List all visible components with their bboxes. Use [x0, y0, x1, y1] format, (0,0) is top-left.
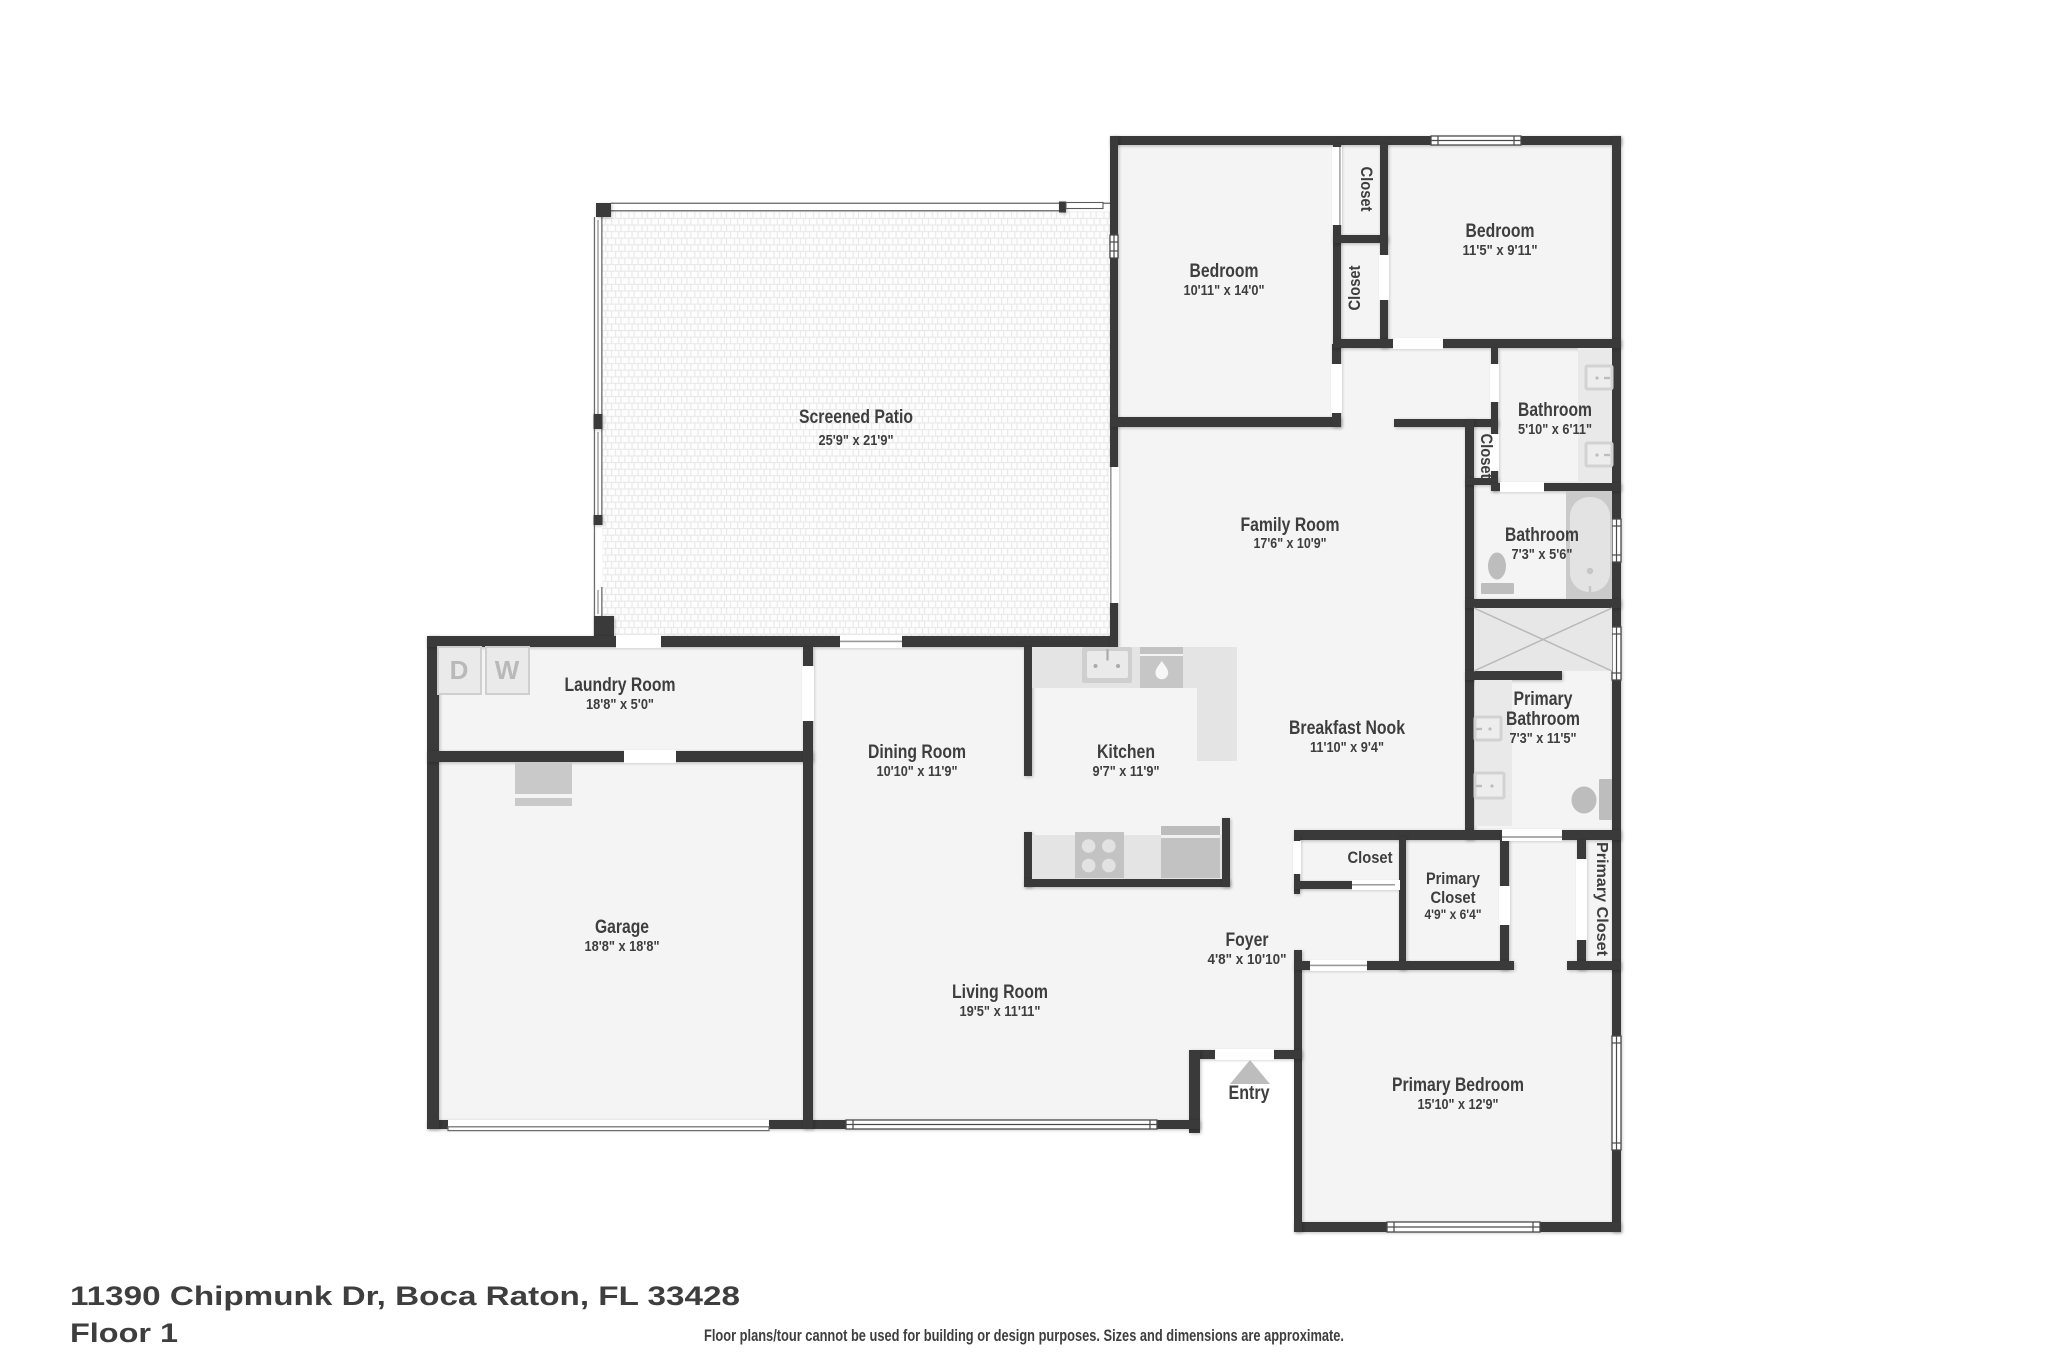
svg-text:Entry: Entry	[1229, 1083, 1270, 1104]
svg-text:9'7" x 11'9": 9'7" x 11'9"	[1093, 763, 1160, 780]
svg-text:Breakfast Nook: Breakfast Nook	[1289, 718, 1405, 739]
svg-text:10'11" x 14'0": 10'11" x 14'0"	[1184, 282, 1265, 299]
svg-text:Primary Bedroom: Primary Bedroom	[1392, 1075, 1524, 1096]
svg-text:10'10" x 11'9": 10'10" x 11'9"	[877, 763, 958, 780]
svg-text:Family Room: Family Room	[1241, 515, 1340, 536]
svg-text:25'9" x 21'9": 25'9" x 21'9"	[819, 432, 894, 449]
svg-text:11'10" x 9'4": 11'10" x 9'4"	[1310, 739, 1384, 756]
svg-text:Closet: Closet	[1477, 434, 1496, 479]
svg-text:7'3" x 5'6": 7'3" x 5'6"	[1512, 546, 1573, 563]
svg-text:Dining Room: Dining Room	[868, 742, 966, 763]
svg-text:18'8" x 5'0": 18'8" x 5'0"	[586, 696, 654, 713]
svg-text:11'5" x 9'11": 11'5" x 9'11"	[1463, 242, 1538, 259]
svg-text:Closet: Closet	[1348, 848, 1393, 867]
svg-text:Bathroom: Bathroom	[1506, 709, 1580, 730]
svg-text:18'8" x 18'8": 18'8" x 18'8"	[585, 938, 660, 955]
svg-text:D: D	[450, 655, 469, 685]
svg-text:Bathroom: Bathroom	[1505, 525, 1579, 546]
svg-text:17'6" x 10'9": 17'6" x 10'9"	[1254, 535, 1327, 552]
svg-text:Garage: Garage	[595, 917, 649, 938]
svg-text:11390 Chipmunk Dr, Boca Raton,: 11390 Chipmunk Dr, Boca Raton, FL 33428	[70, 1281, 740, 1311]
svg-text:Floor plans/tour cannot be use: Floor plans/tour cannot be used for buil…	[704, 1327, 1344, 1345]
svg-text:Closet: Closet	[1345, 265, 1364, 310]
svg-text:Laundry Room: Laundry Room	[565, 675, 676, 696]
svg-text:Bedroom: Bedroom	[1466, 221, 1535, 242]
svg-text:Closet: Closet	[1431, 888, 1476, 907]
svg-text:Closet: Closet	[1357, 167, 1376, 212]
svg-text:Foyer: Foyer	[1226, 930, 1269, 951]
svg-text:Bathroom: Bathroom	[1518, 400, 1592, 421]
svg-text:W: W	[495, 655, 520, 685]
svg-text:Bedroom: Bedroom	[1190, 261, 1259, 282]
svg-text:7'3" x 11'5": 7'3" x 11'5"	[1510, 730, 1577, 747]
svg-text:Primary: Primary	[1426, 869, 1480, 888]
svg-text:Kitchen: Kitchen	[1097, 742, 1155, 763]
svg-text:4'8" x 10'10": 4'8" x 10'10"	[1208, 951, 1287, 968]
svg-text:15'10" x 12'9": 15'10" x 12'9"	[1418, 1096, 1499, 1113]
svg-text:Screened Patio: Screened Patio	[799, 407, 913, 428]
svg-text:19'5" x 11'11": 19'5" x 11'11"	[960, 1003, 1041, 1020]
svg-text:Primary: Primary	[1514, 689, 1573, 710]
svg-text:4'9" x 6'4": 4'9" x 6'4"	[1425, 906, 1482, 922]
svg-text:Floor 1: Floor 1	[70, 1318, 178, 1348]
svg-text:Primary Closet: Primary Closet	[1593, 842, 1610, 957]
svg-text:Living Room: Living Room	[952, 982, 1048, 1003]
svg-text:5'10" x 6'11": 5'10" x 6'11"	[1518, 421, 1592, 438]
